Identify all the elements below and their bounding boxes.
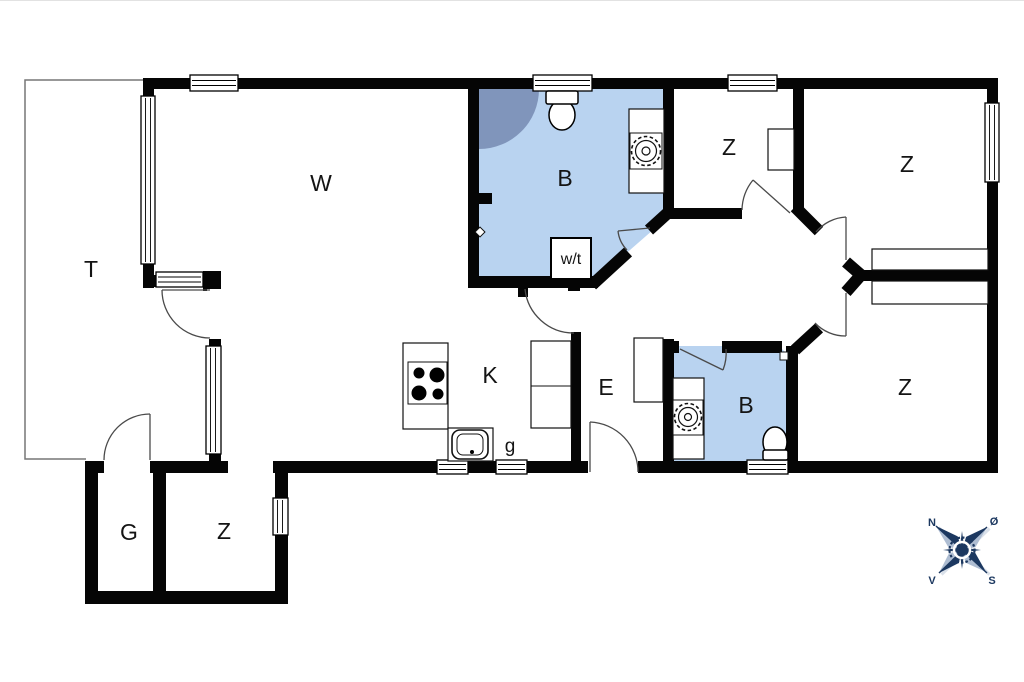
room-label-kitchen: K — [482, 362, 498, 388]
wall-bath-bottom-north-b — [722, 341, 782, 353]
wall-annex-divider — [153, 473, 166, 593]
wall-diagonal-jamb-bottom — [795, 328, 819, 350]
vent-symbol — [780, 352, 788, 360]
kitchen-cabinet — [531, 341, 571, 428]
room-label-terrace: T — [84, 256, 98, 282]
room-label-bedroom-mid: Z — [722, 134, 736, 160]
wall-bath-top-east — [663, 89, 674, 215]
wall-kitchen-entrance — [571, 332, 581, 473]
window — [206, 346, 221, 454]
kitchen-sink — [448, 428, 493, 461]
window — [533, 75, 592, 91]
wall-bedrooms-divider — [858, 270, 990, 281]
window — [437, 460, 468, 474]
wall-bedroom-mid-east — [793, 89, 804, 211]
gap-living-terrace-door — [207, 289, 222, 339]
entrance-cabinet — [634, 338, 663, 402]
wall-bedroom-mid-south — [663, 208, 742, 219]
room-label-bathroom-bottom: B — [738, 392, 753, 418]
toilet — [546, 91, 578, 130]
stove — [403, 343, 448, 429]
window — [747, 460, 788, 474]
window — [141, 96, 155, 264]
door-living-terrace — [162, 290, 210, 338]
wall-bottom — [85, 461, 998, 473]
wall-stub — [479, 193, 492, 204]
window — [273, 498, 288, 535]
room-label-entrance: E — [598, 374, 613, 400]
wardrobe — [872, 249, 988, 270]
window — [985, 103, 999, 182]
compass-east-label: Ø — [990, 516, 999, 528]
wall-annex-bottom — [85, 591, 288, 604]
compass-south-label: S — [988, 575, 995, 587]
wall-chevron-b — [846, 275, 861, 292]
door-bedroom-topright — [816, 217, 846, 260]
wall-stub-corridor — [518, 276, 528, 297]
wall-entrance-east — [663, 339, 674, 473]
compass-rose: N Ø V S — [928, 516, 999, 587]
wall-diagonal-jamb-top — [795, 207, 819, 231]
window — [728, 75, 777, 91]
gap-annex-opening — [228, 459, 273, 474]
window — [156, 272, 203, 287]
floor-plan-svg: w/t — [0, 1, 1024, 682]
room-label-bedroom-bottomright: Z — [898, 374, 912, 400]
window — [190, 75, 238, 91]
wall-annex-left — [85, 461, 98, 604]
floor-plan-canvas: w/t — [0, 0, 1024, 682]
wall-bath-top-west — [468, 89, 479, 279]
door-bedroom-mid — [742, 180, 790, 213]
compass-west-label: V — [928, 575, 936, 587]
bedroom-shelf — [768, 129, 794, 170]
compass-north-label: N — [928, 517, 936, 529]
gap-front-door — [588, 459, 638, 474]
washer-dryer-label: w/t — [560, 251, 582, 268]
room-label-living: W — [310, 170, 332, 196]
gap-terrace-door — [104, 459, 150, 474]
room-label-bedroom-topright: Z — [900, 151, 914, 177]
toilet — [763, 427, 788, 460]
wall-hinge-block — [568, 282, 580, 291]
wardrobe — [872, 281, 988, 304]
compass-body — [936, 526, 987, 573]
room-label-pantry: g — [505, 436, 516, 457]
washer-dryer-box: w/t — [551, 238, 591, 279]
room-label-annex-storage: G — [120, 519, 138, 545]
room-label-annex-bedroom: Z — [217, 518, 231, 544]
door-corridor — [525, 289, 574, 333]
sink — [629, 109, 664, 193]
sink — [673, 378, 704, 459]
room-label-bathroom-top: B — [557, 165, 572, 191]
window — [496, 460, 527, 474]
door-terrace-storage — [104, 414, 150, 460]
